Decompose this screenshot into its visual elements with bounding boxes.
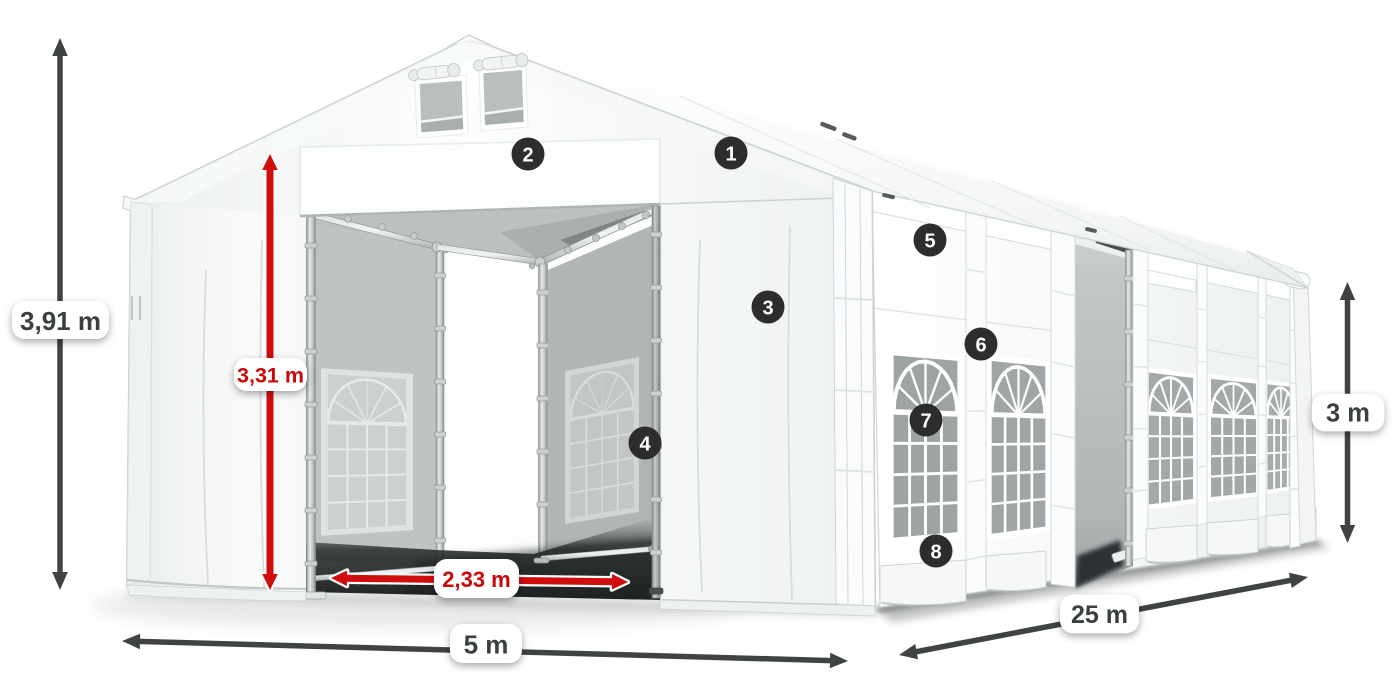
svg-text:3,91 m: 3,91 m	[20, 306, 101, 336]
svg-text:2,33 m: 2,33 m	[442, 567, 511, 592]
svg-text:5 m: 5 m	[464, 630, 509, 660]
svg-text:1: 1	[725, 144, 736, 166]
svg-text:8: 8	[930, 542, 941, 564]
svg-text:3: 3	[762, 298, 773, 320]
svg-text:2: 2	[522, 145, 533, 167]
svg-text:3,31 m: 3,31 m	[237, 364, 304, 388]
svg-text:5: 5	[924, 231, 935, 253]
svg-text:3 m: 3 m	[1326, 400, 1370, 428]
svg-text:4: 4	[639, 434, 651, 456]
svg-text:25 m: 25 m	[1071, 601, 1128, 629]
svg-text:6: 6	[975, 335, 986, 357]
svg-text:7: 7	[920, 411, 931, 433]
